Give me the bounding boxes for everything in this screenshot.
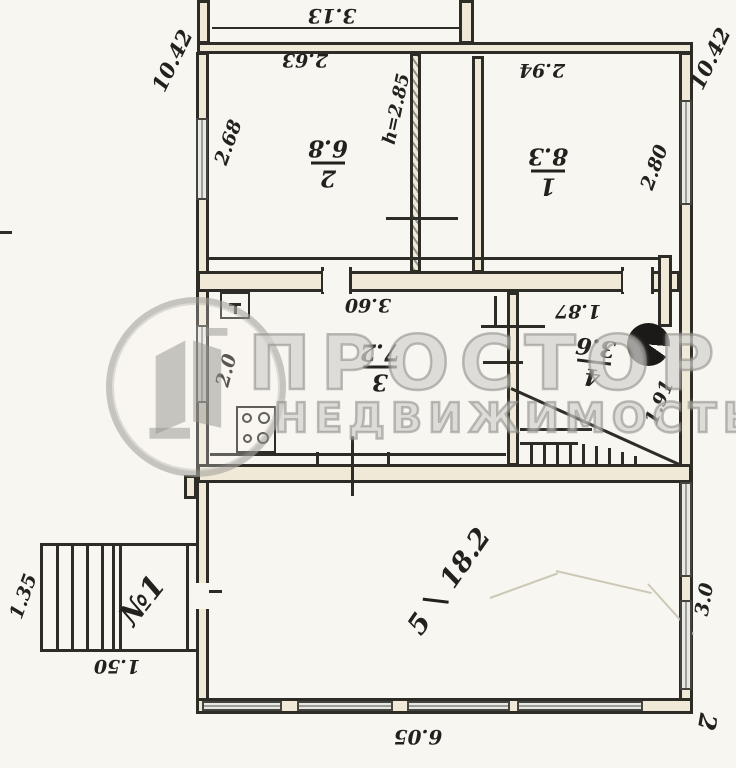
porch-step-edge: [112, 545, 115, 650]
door-jamb: [651, 267, 654, 294]
room-label-1: 1 8.3: [528, 145, 568, 198]
porch-link: [186, 649, 197, 652]
dim-porch-width: 1.50: [86, 656, 148, 675]
stair-tread: [569, 442, 572, 464]
porch-link: [186, 543, 197, 546]
door-opening-room4: [623, 271, 651, 292]
dim-room1-side: 2.80: [634, 131, 676, 203]
dimension-tick: [387, 452, 390, 466]
porch-step: [56, 545, 59, 650]
dim-kitchen-width: 3.60: [335, 295, 401, 314]
stair-tread: [556, 442, 559, 464]
watermark-building-icon: [112, 303, 268, 459]
watermark-subtitle: НЕДВИЖИМОСТЬ: [274, 398, 736, 439]
rooms-floor-line: [209, 257, 661, 260]
dim-room4-width: 1.87: [547, 301, 609, 320]
floorplan-scan: 2 6.8 1 8.3 3 7.2 4 3.6 5 18.2 3.13 2.63…: [0, 0, 736, 768]
room-label-5: 5 18.2: [401, 522, 497, 640]
porch-step: [101, 545, 104, 650]
fraction-bar: [311, 162, 345, 165]
corner-handwritten-mark: 2: [693, 707, 721, 737]
stair-tread: [634, 456, 637, 464]
pencil-mark: [556, 570, 652, 594]
stair-tread: [608, 448, 611, 464]
stair-tread: [582, 444, 585, 464]
stair-tread: [621, 452, 624, 464]
window-room5-bottom-3: [407, 701, 510, 711]
partition-room1-left: [472, 56, 484, 273]
edge-mark: [0, 231, 12, 234]
stair-tread: [595, 446, 598, 464]
dimension-tick: [386, 217, 458, 220]
room-area: 8.3: [528, 145, 568, 168]
wall-top-extension-right: [459, 0, 474, 44]
room-number: 2: [320, 167, 336, 190]
dim-room5-width: 6.05: [384, 727, 452, 747]
wall-mid-lower: [197, 464, 692, 483]
room-area: 6.8: [308, 137, 348, 160]
window-room5-bottom-1: [202, 701, 282, 711]
window-room5-bottom-2: [297, 701, 393, 711]
dim-top-extension: 3.13: [302, 6, 362, 26]
fraction-bar: [531, 170, 565, 173]
chimney-stub: [184, 475, 197, 499]
door-jamb: [349, 267, 352, 294]
room-area: 18.2: [434, 522, 497, 594]
pencil-mark: [490, 572, 558, 599]
window-room5-right-1: [680, 482, 692, 577]
watermark-brand: ПРОСТОР: [248, 326, 724, 401]
room-label-2: 2 6.8: [308, 137, 348, 190]
wall-mid-upper: [197, 271, 680, 292]
window-room2-left: [196, 118, 208, 200]
window-room1-right: [680, 100, 692, 205]
dim-room2-side: 2.68: [208, 106, 250, 178]
window-room5-bottom-4: [517, 701, 643, 711]
dimension-tick: [316, 452, 319, 466]
flue-wall-room4: [658, 255, 672, 327]
room-number: 1: [540, 175, 556, 198]
dim-porch-side: 1.35: [4, 563, 44, 630]
dim-room5-side: 3.0: [691, 571, 719, 627]
dim-room2-width: 2.63: [274, 50, 336, 69]
porch-step: [86, 545, 89, 650]
porch-step: [71, 545, 74, 650]
door-opening-porch: [196, 583, 209, 609]
dim-total-left: 10.42: [141, 11, 204, 110]
dim-room1-width: 2.94: [511, 60, 573, 79]
axis-tick: [351, 436, 354, 496]
stair-tread: [543, 442, 546, 464]
room-number: 5: [401, 607, 437, 640]
door-opening-kitchen: [323, 271, 349, 292]
wall-top-main: [197, 42, 693, 54]
fraction-bar: [423, 598, 449, 604]
stair-tread: [530, 442, 533, 464]
